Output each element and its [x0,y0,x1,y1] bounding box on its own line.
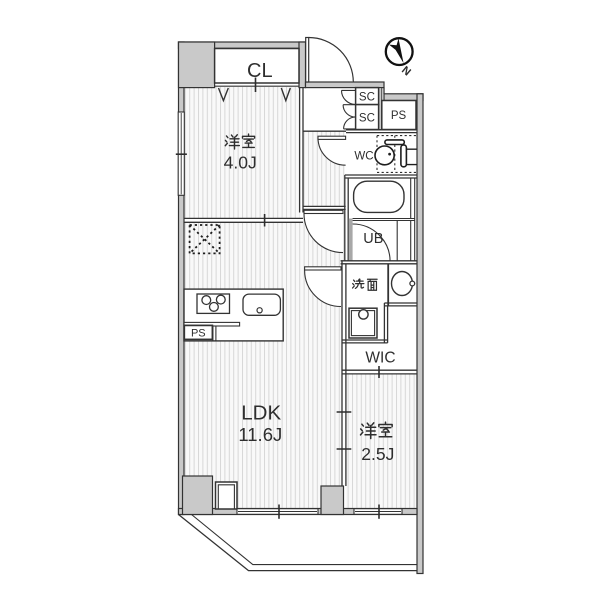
svg-text:11.6J: 11.6J [238,424,282,445]
svg-text:SC: SC [359,91,375,103]
svg-text:LDK: LDK [241,402,281,425]
svg-text:WC: WC [354,150,373,162]
svg-text:PS: PS [191,327,206,339]
svg-text:SC: SC [359,113,375,125]
svg-text:CL: CL [247,60,273,82]
svg-text:WIC: WIC [365,350,395,367]
svg-text:PS: PS [391,110,407,122]
svg-text:2.5J: 2.5J [361,444,394,464]
svg-text:4.0J: 4.0J [224,153,257,173]
svg-text:UB: UB [363,231,383,247]
